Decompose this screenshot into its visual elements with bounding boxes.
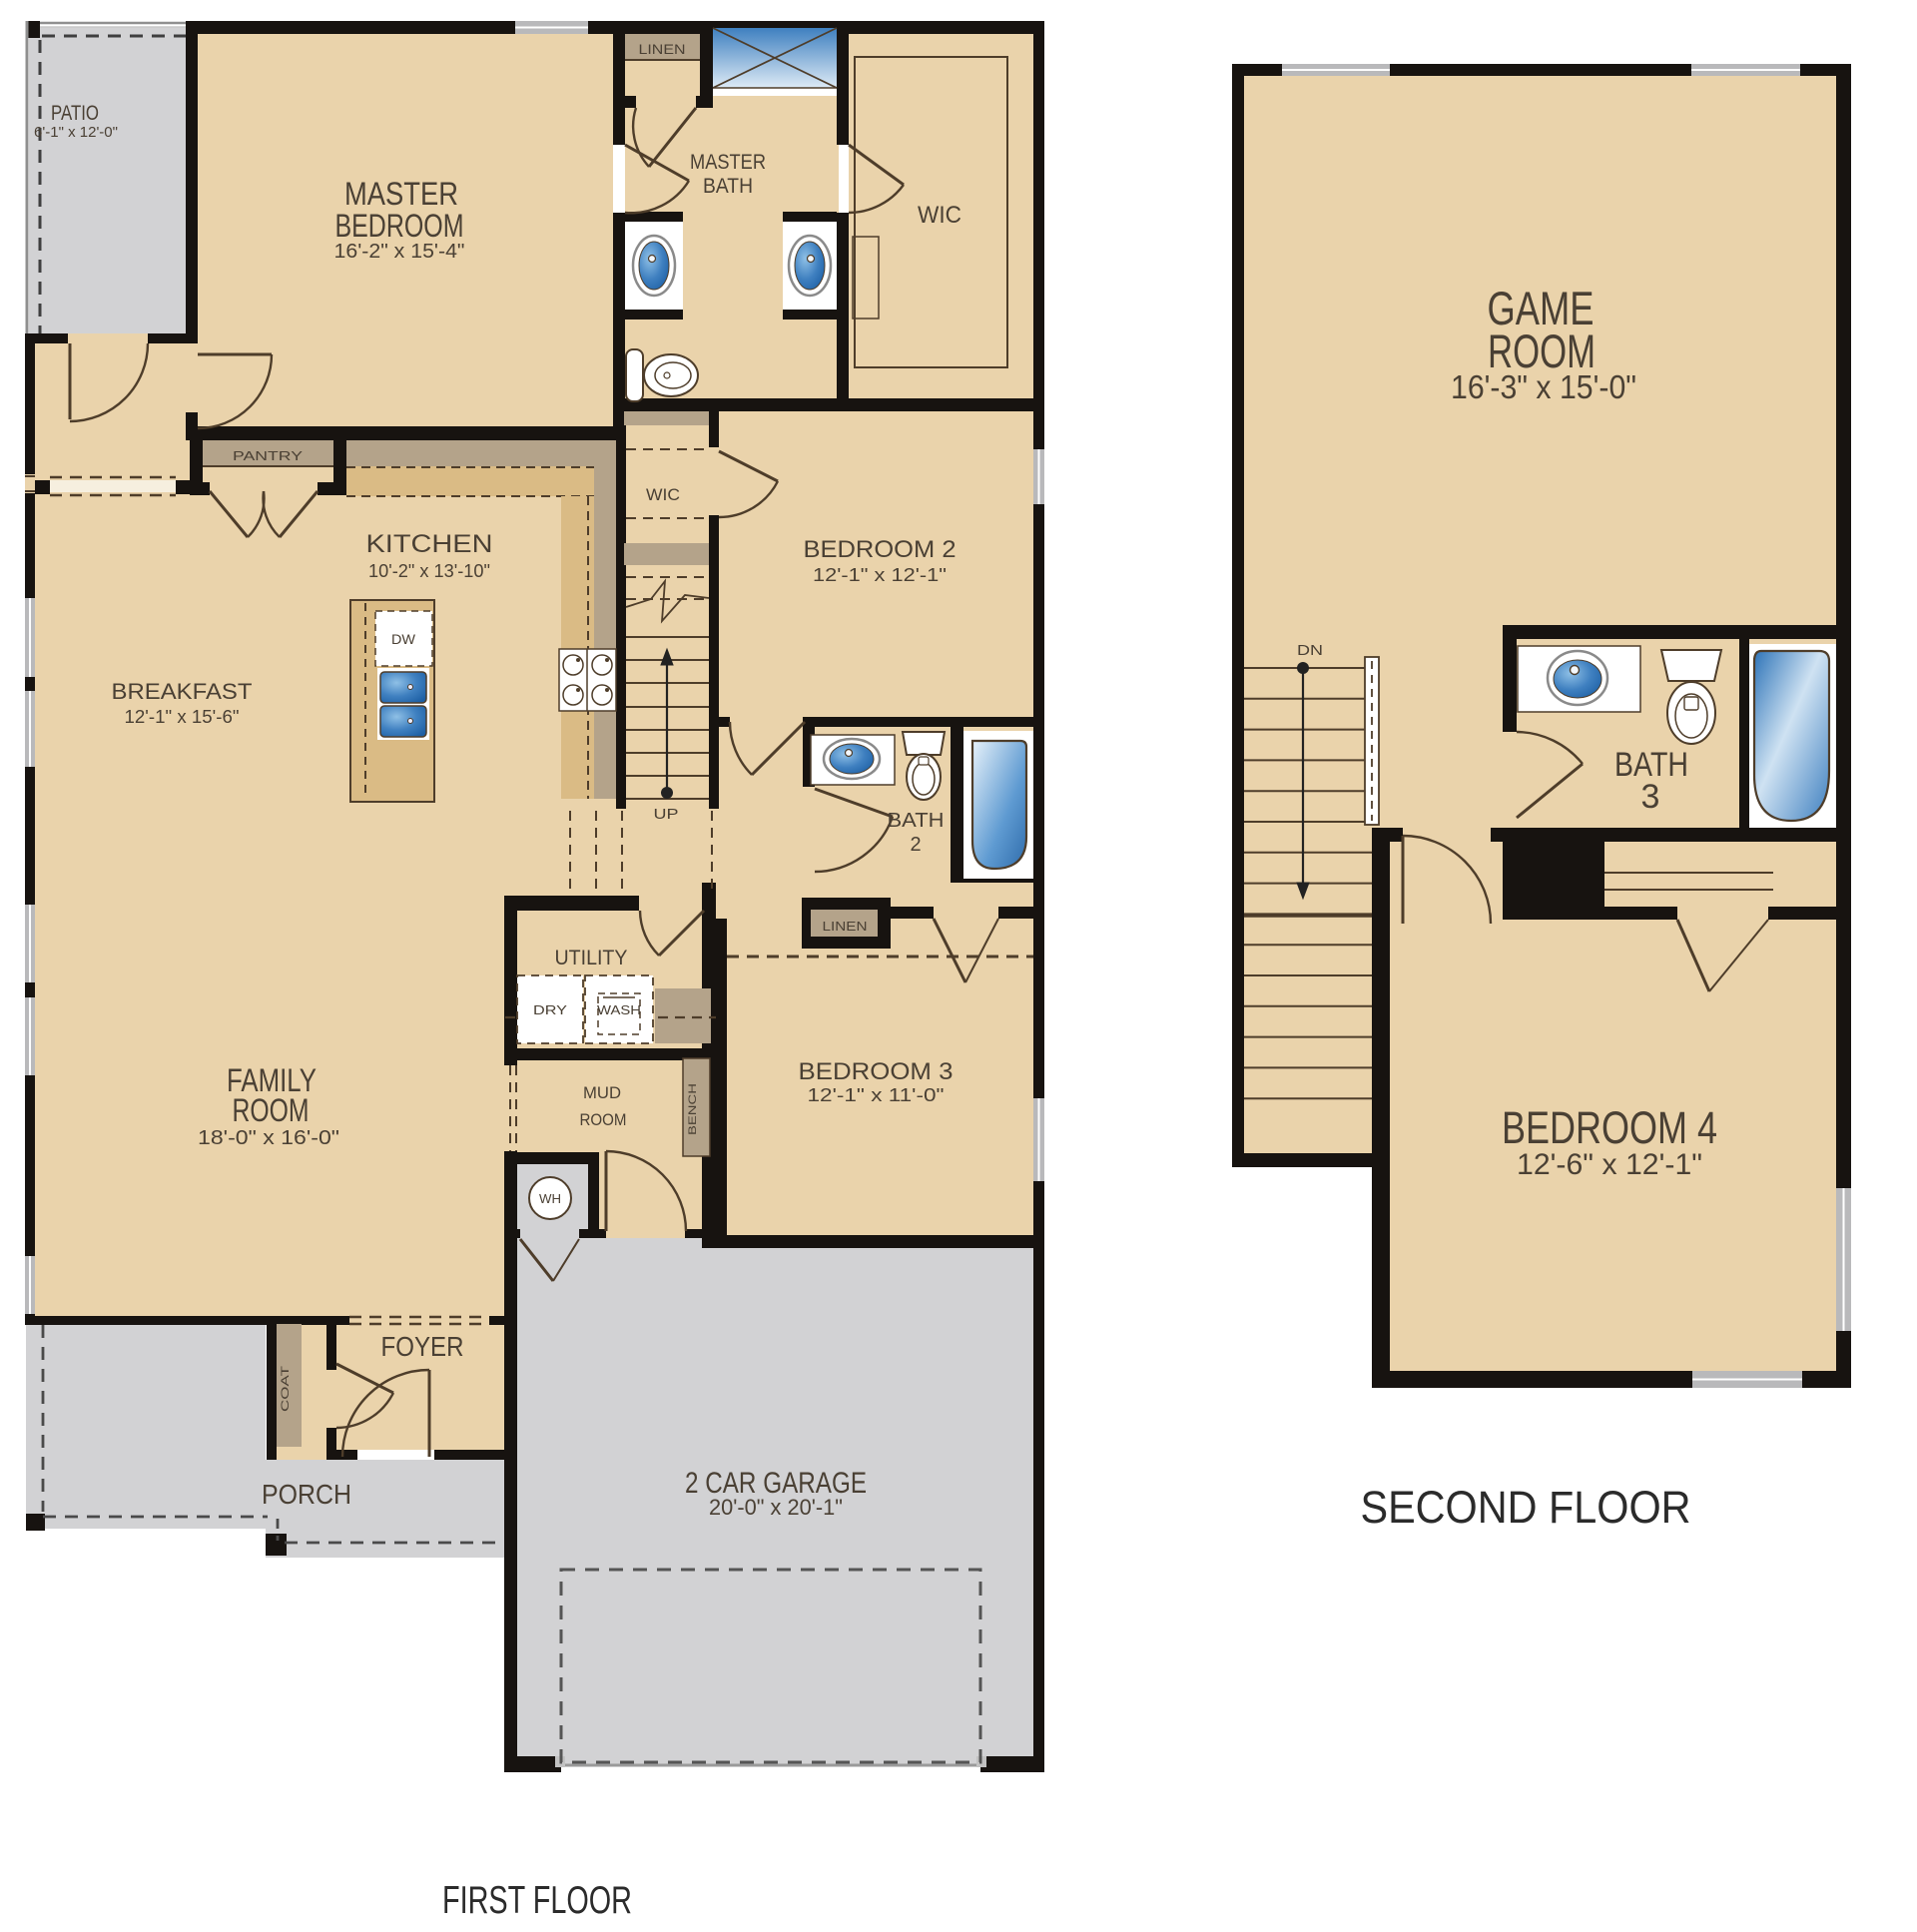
svg-text:3: 3 bbox=[1641, 778, 1660, 816]
svg-text:BATH: BATH bbox=[703, 175, 753, 198]
svg-text:BEDROOM 3: BEDROOM 3 bbox=[799, 1058, 954, 1085]
svg-text:BEDROOM: BEDROOM bbox=[335, 208, 464, 244]
svg-text:MASTER: MASTER bbox=[690, 151, 766, 174]
svg-text:COAT: COAT bbox=[280, 1366, 292, 1412]
svg-text:ROOM: ROOM bbox=[580, 1110, 627, 1129]
svg-text:18'-0" x 16'-0": 18'-0" x 16'-0" bbox=[198, 1127, 339, 1149]
svg-text:16'-3" x 15'-0": 16'-3" x 15'-0" bbox=[1451, 368, 1636, 405]
svg-text:12'-1" x 15'-6": 12'-1" x 15'-6" bbox=[125, 707, 240, 727]
svg-text:BEDROOM 4: BEDROOM 4 bbox=[1502, 1102, 1717, 1153]
svg-text:WH: WH bbox=[539, 1191, 561, 1206]
svg-text:WIC: WIC bbox=[646, 485, 680, 504]
svg-text:KITCHEN: KITCHEN bbox=[366, 530, 493, 558]
svg-text:UP: UP bbox=[654, 806, 679, 823]
svg-text:PATIO: PATIO bbox=[51, 102, 99, 125]
svg-text:UTILITY: UTILITY bbox=[555, 947, 628, 969]
svg-text:16'-2" x 15'-4": 16'-2" x 15'-4" bbox=[334, 241, 465, 263]
svg-text:10'-2" x 13'-10": 10'-2" x 13'-10" bbox=[368, 561, 490, 581]
svg-text:DW: DW bbox=[391, 631, 416, 647]
svg-text:SECOND FLOOR: SECOND FLOOR bbox=[1361, 1482, 1691, 1533]
svg-text:FOYER: FOYER bbox=[381, 1331, 464, 1362]
svg-text:2: 2 bbox=[910, 834, 921, 856]
svg-text:12'-6" x 12'-1": 12'-6" x 12'-1" bbox=[1517, 1148, 1702, 1181]
svg-text:FIRST FLOOR: FIRST FLOOR bbox=[442, 1879, 632, 1922]
svg-text:BATH: BATH bbox=[888, 810, 945, 832]
svg-text:12'-1" x 11'-0": 12'-1" x 11'-0" bbox=[808, 1085, 945, 1105]
svg-text:ROOM: ROOM bbox=[233, 1092, 310, 1128]
svg-text:DRY: DRY bbox=[533, 1002, 567, 1017]
svg-text:BREAKFAST: BREAKFAST bbox=[112, 679, 253, 704]
svg-text:MUD: MUD bbox=[583, 1083, 621, 1102]
svg-text:6'-1" x 12'-0": 6'-1" x 12'-0" bbox=[34, 124, 118, 141]
svg-text:MASTER: MASTER bbox=[344, 176, 458, 212]
svg-text:WASH: WASH bbox=[597, 1002, 641, 1017]
svg-text:DN: DN bbox=[1297, 642, 1323, 659]
svg-text:WIC: WIC bbox=[918, 202, 961, 229]
svg-text:LINEN: LINEN bbox=[639, 41, 686, 57]
svg-text:BENCH: BENCH bbox=[687, 1083, 699, 1135]
svg-text:20'-0" x 20'-1": 20'-0" x 20'-1" bbox=[709, 1495, 843, 1520]
svg-text:PORCH: PORCH bbox=[262, 1479, 351, 1510]
svg-text:LINEN: LINEN bbox=[823, 919, 868, 934]
svg-text:12'-1" x 12'-1": 12'-1" x 12'-1" bbox=[813, 565, 947, 585]
svg-text:PANTRY: PANTRY bbox=[233, 448, 303, 463]
svg-text:BEDROOM 2: BEDROOM 2 bbox=[804, 536, 957, 563]
